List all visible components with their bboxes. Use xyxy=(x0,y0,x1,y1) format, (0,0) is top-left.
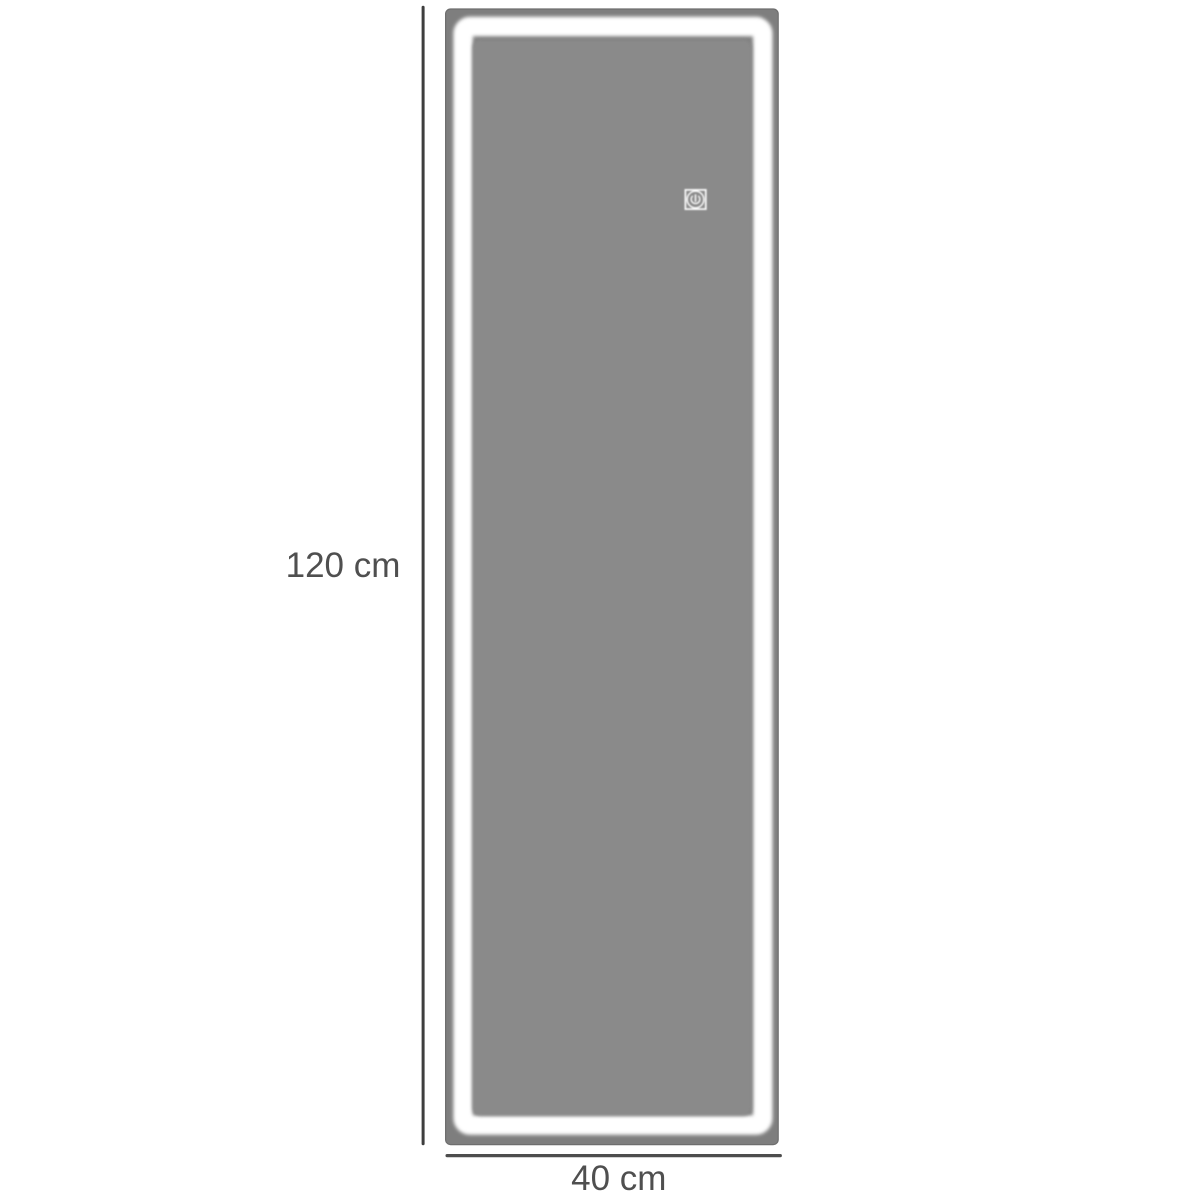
svg-text:40 cm: 40 cm xyxy=(571,1159,666,1198)
svg-text:120 cm: 120 cm xyxy=(286,546,401,585)
